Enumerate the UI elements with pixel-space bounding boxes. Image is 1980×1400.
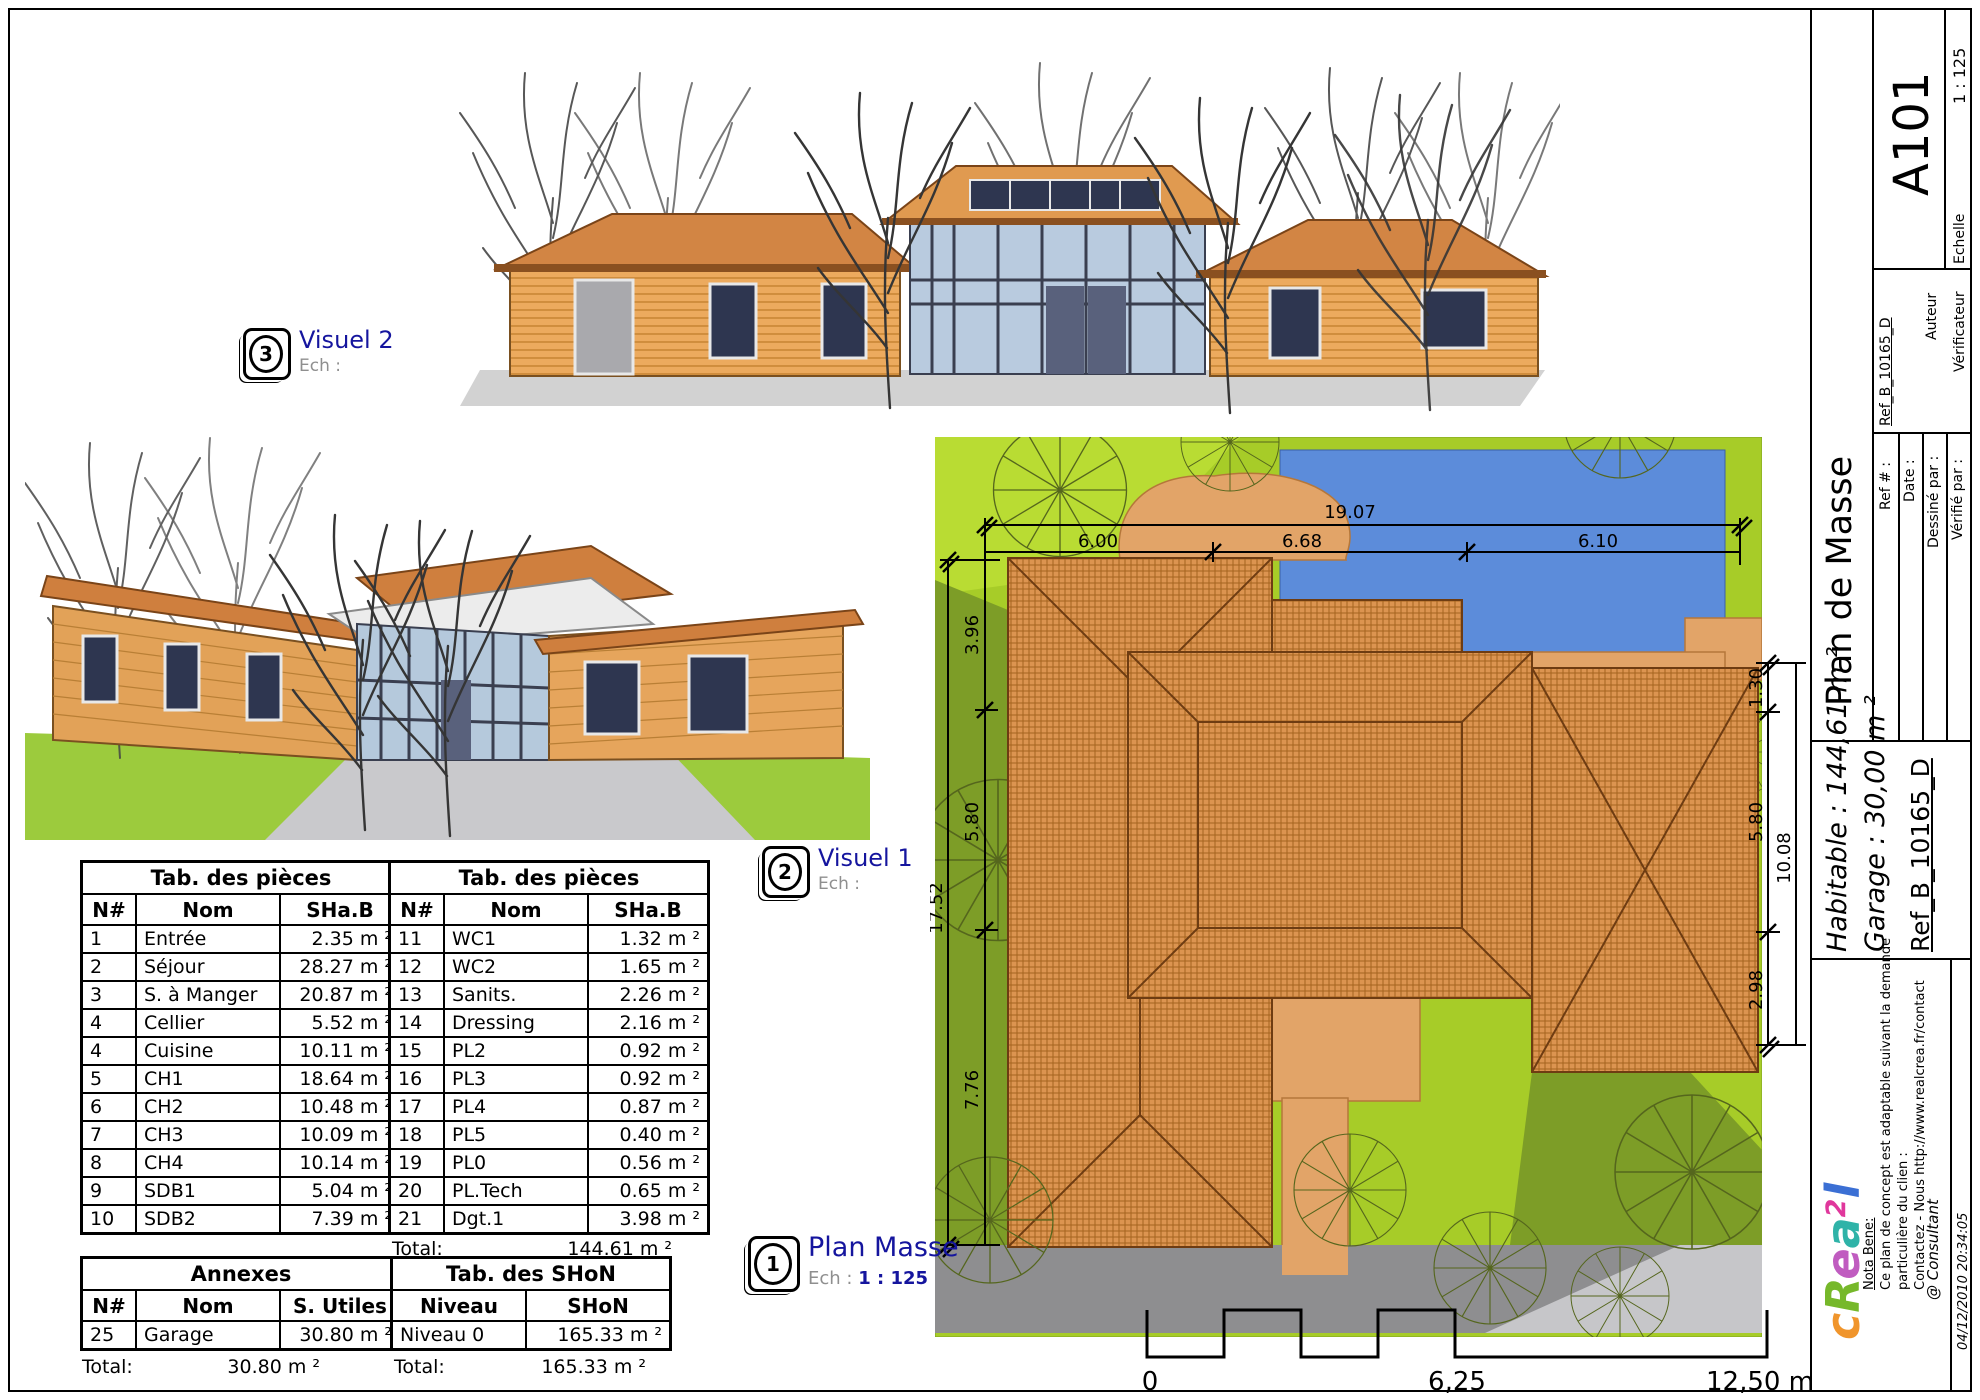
svg-text:19.07: 19.07 [1324, 502, 1376, 523]
table-cell: 2.16 m ² [588, 1009, 709, 1037]
author-field-label: Auteur [1924, 293, 1940, 340]
table-cell: 10.11 m ² [280, 1037, 401, 1065]
table-cell: Sanits. [444, 981, 588, 1009]
table-row: 25Garage30.80 m ² [82, 1321, 401, 1350]
table-cell: 1.65 m ² [588, 953, 709, 981]
table-cell: 2.35 m ² [280, 925, 401, 953]
table-header-row: N#NomS. Utiles [82, 1290, 401, 1321]
visuel2-scale-label: Ech : [299, 356, 341, 376]
table-cell: 6 [82, 1093, 137, 1121]
view-number: 3 [249, 335, 283, 373]
table-row: 2Séjour28.27 m ² [82, 953, 401, 981]
table-cell: 2 [82, 953, 137, 981]
table-cell: S. Utiles [280, 1290, 401, 1321]
table-cell: 10.14 m ² [280, 1149, 401, 1177]
table-cell: 12 [390, 953, 445, 981]
table-cell: 3 [82, 981, 137, 1009]
table-row: 4Cellier5.52 m ² [82, 1009, 401, 1037]
table-cell: N# [82, 894, 137, 925]
scale-value: 1 : 125 [858, 1268, 928, 1289]
plan-masse-scale-label: Ech : 1 : 125 [808, 1268, 928, 1289]
svg-text:5.80: 5.80 [962, 802, 983, 842]
table-header-row: N#NomSHa.B [82, 894, 401, 925]
table-cell: 13 [390, 981, 445, 1009]
table-title-row: Annexes [82, 1258, 401, 1291]
table-title-row: Tab. des pièces [390, 862, 709, 895]
logo-letter: a [1816, 1217, 1870, 1248]
ech-label: Ech : [808, 1268, 852, 1289]
site-plan: 19.07 6.00 6.68 6.10 17.52 3.96 5.80 7.7… [930, 430, 1815, 1345]
svg-text:3.96: 3.96 [962, 615, 983, 655]
svg-text:6.00: 6.00 [1078, 531, 1118, 552]
table-cell: PL2 [444, 1037, 588, 1065]
table-row: 18PL50.40 m ² [390, 1121, 709, 1149]
table-cell: Entrée [136, 925, 280, 953]
drawn-by-field-label: Dessiné par : [1926, 456, 1942, 548]
ref-big: Ref_B_10165_D [1906, 758, 1935, 952]
view-number: 2 [768, 853, 802, 891]
table-cell: 2.26 m ² [588, 981, 709, 1009]
ref-field-label: Ref # : [1878, 462, 1894, 510]
logo-letter: 2 [1821, 1199, 1852, 1218]
table-cell: 20 [390, 1177, 445, 1205]
table-cell: 17 [390, 1093, 445, 1121]
table-cell: N# [82, 1290, 137, 1321]
svg-text:10.08: 10.08 [1774, 832, 1795, 884]
table-cell: 0.87 m ² [588, 1093, 709, 1121]
table-cell: 5.52 m ² [280, 1009, 401, 1037]
table-title-row: Tab. des SHoN [392, 1258, 671, 1291]
svg-text:2.98: 2.98 [1746, 970, 1767, 1010]
titleblock-divider [1872, 8, 1874, 740]
svg-text:0: 0 [1142, 1367, 1159, 1395]
total-label: Total: [82, 1356, 133, 1378]
garage-area: Garage : 30,00 m ² [1860, 695, 1891, 952]
table-cell: 9 [82, 1177, 137, 1205]
table-cell: SHa.B [588, 894, 709, 925]
table-row: 9SDB15.04 m ² [82, 1177, 401, 1205]
table-cell: CH4 [136, 1149, 280, 1177]
svg-text:5.80: 5.80 [1746, 802, 1767, 842]
table-cell: 3.98 m ² [588, 1205, 709, 1234]
table-row: 7CH310.09 m ² [82, 1121, 401, 1149]
verifier-field-label: Vérificateur [1952, 291, 1968, 372]
svg-text:6.10: 6.10 [1578, 531, 1618, 552]
table-cell: Nom [444, 894, 588, 925]
titleblock-divider [1898, 432, 1900, 740]
table-cell: CH1 [136, 1065, 280, 1093]
logo-letter: R [1816, 1280, 1870, 1313]
table-cell: SHoN [526, 1290, 671, 1321]
table-cell: Dressing [444, 1009, 588, 1037]
table-cell: 25 [82, 1321, 137, 1350]
table-cell: 11 [390, 925, 445, 953]
table-cell: Cellier [136, 1009, 280, 1037]
table-row: 10SDB27.39 m ² [82, 1205, 401, 1234]
center-section [882, 166, 1238, 374]
table-row: 14Dressing2.16 m ² [390, 1009, 709, 1037]
table-annexes: AnnexesN#NomS. Utiles25Garage30.80 m ² [80, 1256, 402, 1351]
table-title-row: Tab. des pièces [82, 862, 401, 895]
table-row: 6CH210.48 m ² [82, 1093, 401, 1121]
table-pieces-1: Tab. des piècesN#NomSHa.B1Entrée2.35 m ²… [80, 860, 402, 1235]
table-cell: 1 [82, 925, 137, 953]
table-cell: SDB2 [136, 1205, 280, 1234]
table-header-row: N#NomSHa.B [390, 894, 709, 925]
view-marker-1: 1 [748, 1236, 800, 1292]
titleblock-divider [1922, 432, 1924, 740]
table-cell: Nom [136, 894, 280, 925]
table-cell: 5 [82, 1065, 137, 1093]
habitable-area: Habitable : 144,61 m ² [1822, 647, 1853, 952]
titleblock-divider [1810, 8, 1812, 1390]
checked-by-field-label: Vérifié par : [1950, 459, 1966, 540]
table-row: 16PL30.92 m ² [390, 1065, 709, 1093]
table-shon: Tab. des SHoNNiveauSHoNNiveau 0165.33 m … [390, 1256, 672, 1351]
svg-text:12,50 m: 12,50 m [1706, 1367, 1810, 1395]
visuel2-render [370, 18, 1560, 423]
table-cell: 0.40 m ² [588, 1121, 709, 1149]
table-cell: 16 [390, 1065, 445, 1093]
logo-letter: c [1816, 1313, 1870, 1340]
table-cell: Garage [136, 1321, 280, 1350]
shon-total: Total: 165.33 m ² [394, 1356, 646, 1378]
table-cell: Tab. des SHoN [392, 1258, 671, 1291]
table-cell: 5.04 m ² [280, 1177, 401, 1205]
table-header-row: NiveauSHoN [392, 1290, 671, 1321]
table-row: 3S. à Manger20.87 m ² [82, 981, 401, 1009]
table-cell: 10.48 m ² [280, 1093, 401, 1121]
table-cell: PL4 [444, 1093, 588, 1121]
view-marker-3: 3 [243, 328, 291, 380]
table-cell: 0.56 m ² [588, 1149, 709, 1177]
table-row: 12WC21.65 m ² [390, 953, 709, 981]
visuel2-title: Visuel 2 [299, 326, 394, 354]
left-wing [494, 214, 918, 376]
sheet-code: A101 [1884, 72, 1940, 196]
titleblock-divider [1946, 432, 1948, 740]
table-cell: 4 [82, 1009, 137, 1037]
table-row: 4Cuisine10.11 m ² [82, 1037, 401, 1065]
table-row: Niveau 0165.33 m ² [392, 1321, 671, 1350]
table-cell: 18.64 m ² [280, 1065, 401, 1093]
nota-bene-line: particulière du clien : [1896, 1152, 1911, 1290]
table-row: 15PL20.92 m ² [390, 1037, 709, 1065]
table-cell: 7 [82, 1121, 137, 1149]
table-cell: 0.65 m ² [588, 1177, 709, 1205]
table-cell: 1.32 m ² [588, 925, 709, 953]
table-cell: 19 [390, 1149, 445, 1177]
titleblock-divider [1872, 268, 1972, 270]
right-wing [1196, 220, 1546, 376]
table-pieces-2: Tab. des piècesN#NomSHa.B11WC11.32 m ²12… [388, 860, 710, 1235]
table-row: 21Dgt.13.98 m ² [390, 1205, 709, 1234]
right-wing [535, 610, 863, 760]
total-value: 30.80 m ² [227, 1356, 320, 1378]
svg-text:17.52: 17.52 [930, 882, 947, 934]
visuel1-scale-label: Ech : [818, 874, 860, 894]
table-cell: 21 [390, 1205, 445, 1234]
nota-bene-line: Ce plan de concept est adaptable suivant… [1879, 938, 1894, 1290]
left-wing [41, 576, 371, 760]
plan-masse-title: Plan Masse [808, 1232, 959, 1263]
table-cell: SDB1 [136, 1177, 280, 1205]
table-cell: 15 [390, 1037, 445, 1065]
table-row: 1Entrée2.35 m ² [82, 925, 401, 953]
table-cell: 10 [82, 1205, 137, 1234]
table-cell: 14 [390, 1009, 445, 1037]
date-field-label: Date : [1902, 459, 1918, 502]
table-row: 20PL.Tech0.65 m ² [390, 1177, 709, 1205]
table-row: 19PL00.56 m ² [390, 1149, 709, 1177]
table-cell: 28.27 m ² [280, 953, 401, 981]
drawing-sheet: { "titleblock": { "sheet_code": "A101", … [0, 0, 1980, 1400]
table-row: 8CH410.14 m ² [82, 1149, 401, 1177]
timestamp: 04/12/2010 20:34:05 [1956, 1213, 1971, 1350]
scale-value: 1 : 125 [1950, 48, 1969, 104]
titleblock-divider [1950, 958, 1952, 1390]
table-cell: 20.87 m ² [280, 981, 401, 1009]
view-number: 1 [754, 1243, 792, 1285]
table-row: 11WC11.32 m ² [390, 925, 709, 953]
logo-letter: l [1816, 1183, 1870, 1199]
table-cell: 30.80 m ² [280, 1321, 401, 1350]
annexes-total: Total: 30.80 m ² [82, 1356, 320, 1378]
total-label: Total: [394, 1356, 445, 1378]
table-row: 13Sanits.2.26 m ² [390, 981, 709, 1009]
table-cell: Séjour [136, 953, 280, 981]
total-value: 165.33 m ² [541, 1356, 646, 1378]
table-cell: Niveau 0 [392, 1321, 527, 1350]
table-cell: WC1 [444, 925, 588, 953]
table-cell: PL3 [444, 1065, 588, 1093]
visuel1-render [25, 428, 870, 840]
table-cell: Annexes [82, 1258, 401, 1291]
table-cell: Tab. des pièces [82, 862, 401, 895]
consultant-credit: @ Consultant [1924, 1199, 1942, 1300]
visuel1-title: Visuel 1 [818, 844, 913, 872]
table-cell: N# [390, 894, 445, 925]
table-cell: 165.33 m ² [526, 1321, 671, 1350]
ref-number: Ref_B_10165_D [1878, 317, 1894, 426]
table-cell: 10.09 m ² [280, 1121, 401, 1149]
table-cell: 0.92 m ² [588, 1065, 709, 1093]
table-cell: PL.Tech [444, 1177, 588, 1205]
table-cell: Cuisine [136, 1037, 280, 1065]
table-cell: Tab. des pièces [390, 862, 709, 895]
table-cell: 7.39 m ² [280, 1205, 401, 1234]
scale-bar: 0 6,25 12,50 m [1130, 1295, 1810, 1395]
table-cell: CH3 [136, 1121, 280, 1149]
table-cell: SHa.B [280, 894, 401, 925]
table-cell: S. à Manger [136, 981, 280, 1009]
table-row: 5CH118.64 m ² [82, 1065, 401, 1093]
table-cell: WC2 [444, 953, 588, 981]
table-cell: 4 [82, 1037, 137, 1065]
table-cell: 18 [390, 1121, 445, 1149]
view-marker-2: 2 [762, 846, 810, 898]
svg-text:7.76: 7.76 [962, 1070, 983, 1110]
svg-text:1.30: 1.30 [1746, 668, 1767, 708]
table-cell: 0.92 m ² [588, 1037, 709, 1065]
table-cell: PL5 [444, 1121, 588, 1149]
titleblock-divider [1944, 8, 1946, 268]
company-logo: cRea2l [1816, 1183, 1870, 1340]
logo-letter: e [1816, 1248, 1870, 1279]
table-row: 17PL40.87 m ² [390, 1093, 709, 1121]
table-cell: 8 [82, 1149, 137, 1177]
svg-text:6,25: 6,25 [1428, 1367, 1486, 1395]
table-cell: Dgt.1 [444, 1205, 588, 1234]
table-cell: Nom [136, 1290, 280, 1321]
table-cell: CH2 [136, 1093, 280, 1121]
table-cell: PL0 [444, 1149, 588, 1177]
table-cell: Niveau [392, 1290, 527, 1321]
scale-field-label: Echelle [1952, 214, 1968, 264]
svg-text:6.68: 6.68 [1282, 531, 1322, 552]
